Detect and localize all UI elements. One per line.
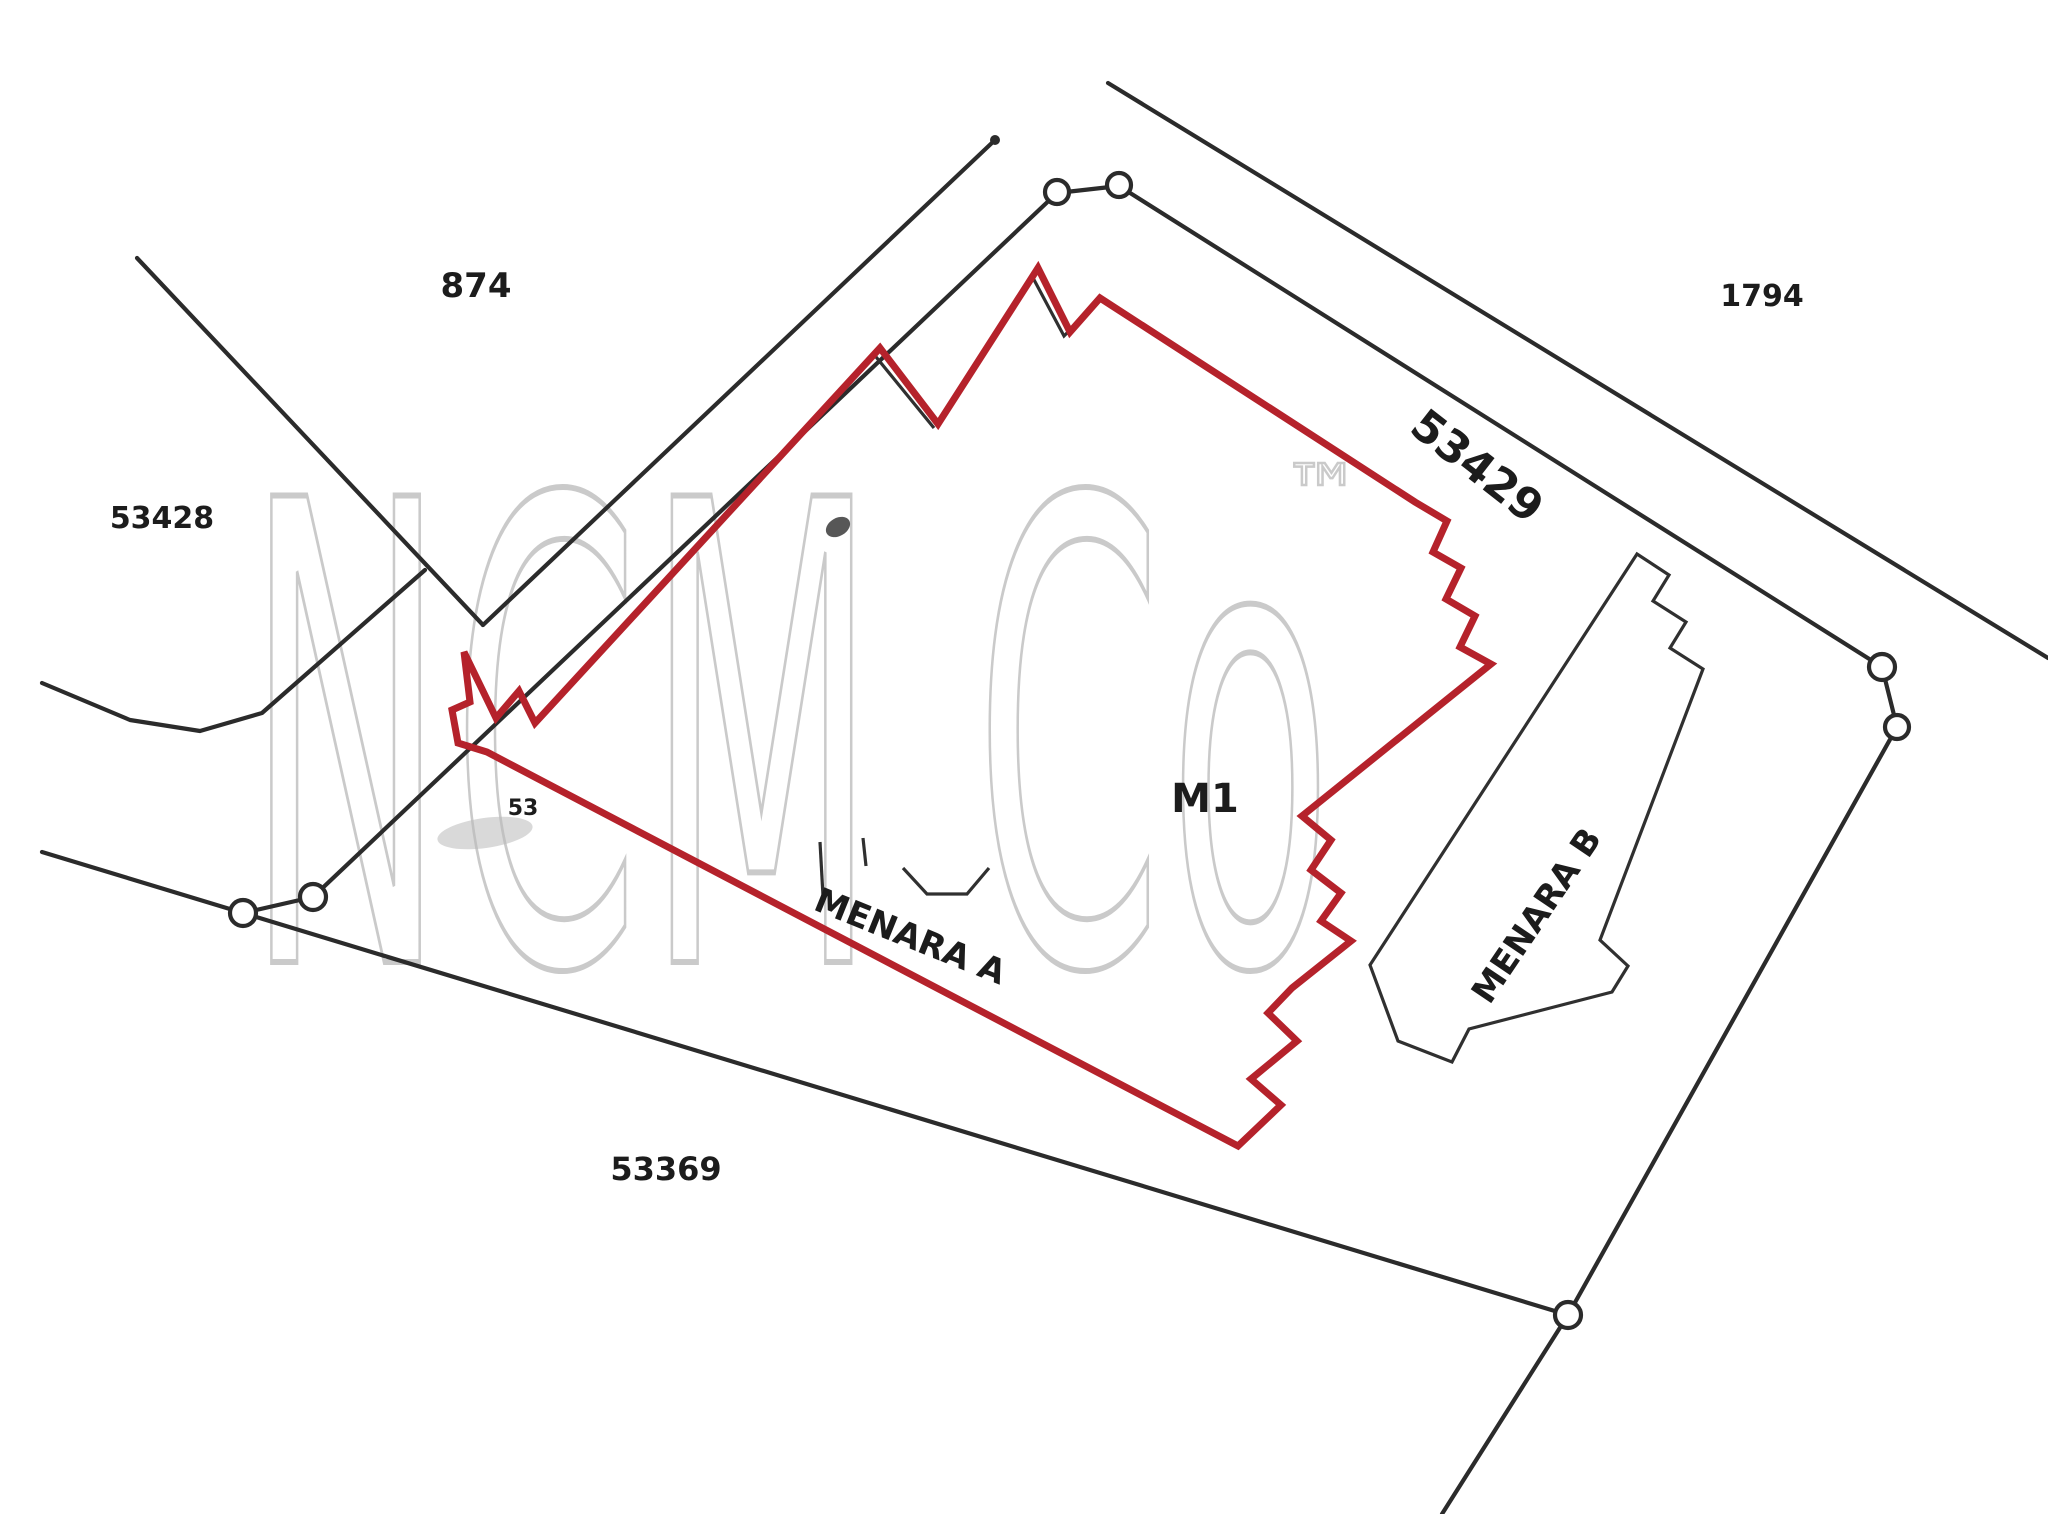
boundary-terminus-dot [990,135,1000,145]
watermark-group: NCM Co™ [245,367,1361,1113]
small-annotation-53: 53 [508,796,539,821]
watermark-text: NCM Co [245,367,1339,1113]
survey-marker-circle [1885,715,1909,739]
survey-marker-circle [300,884,326,910]
survey-plan-canvas: NCM Co™87453428179453429M1MENARA AMENARA… [0,0,2048,1514]
survey-marker-circle [1555,1302,1581,1328]
survey-marker-circle [1869,654,1895,680]
survey-marker-circle [230,900,256,926]
lot-53428-label: 53428 [110,501,214,536]
lot-874-label: 874 [441,266,512,306]
survey-marker-circle [1045,180,1069,204]
survey-marker-circle [1107,173,1131,197]
m1-label: M1 [1171,776,1239,822]
site-plan-drawing: NCM Co™87453428179453429M1MENARA AMENARA… [0,0,2048,1514]
road-53369-label: 53369 [610,1150,721,1188]
lot-1794-label: 1794 [1720,279,1804,314]
